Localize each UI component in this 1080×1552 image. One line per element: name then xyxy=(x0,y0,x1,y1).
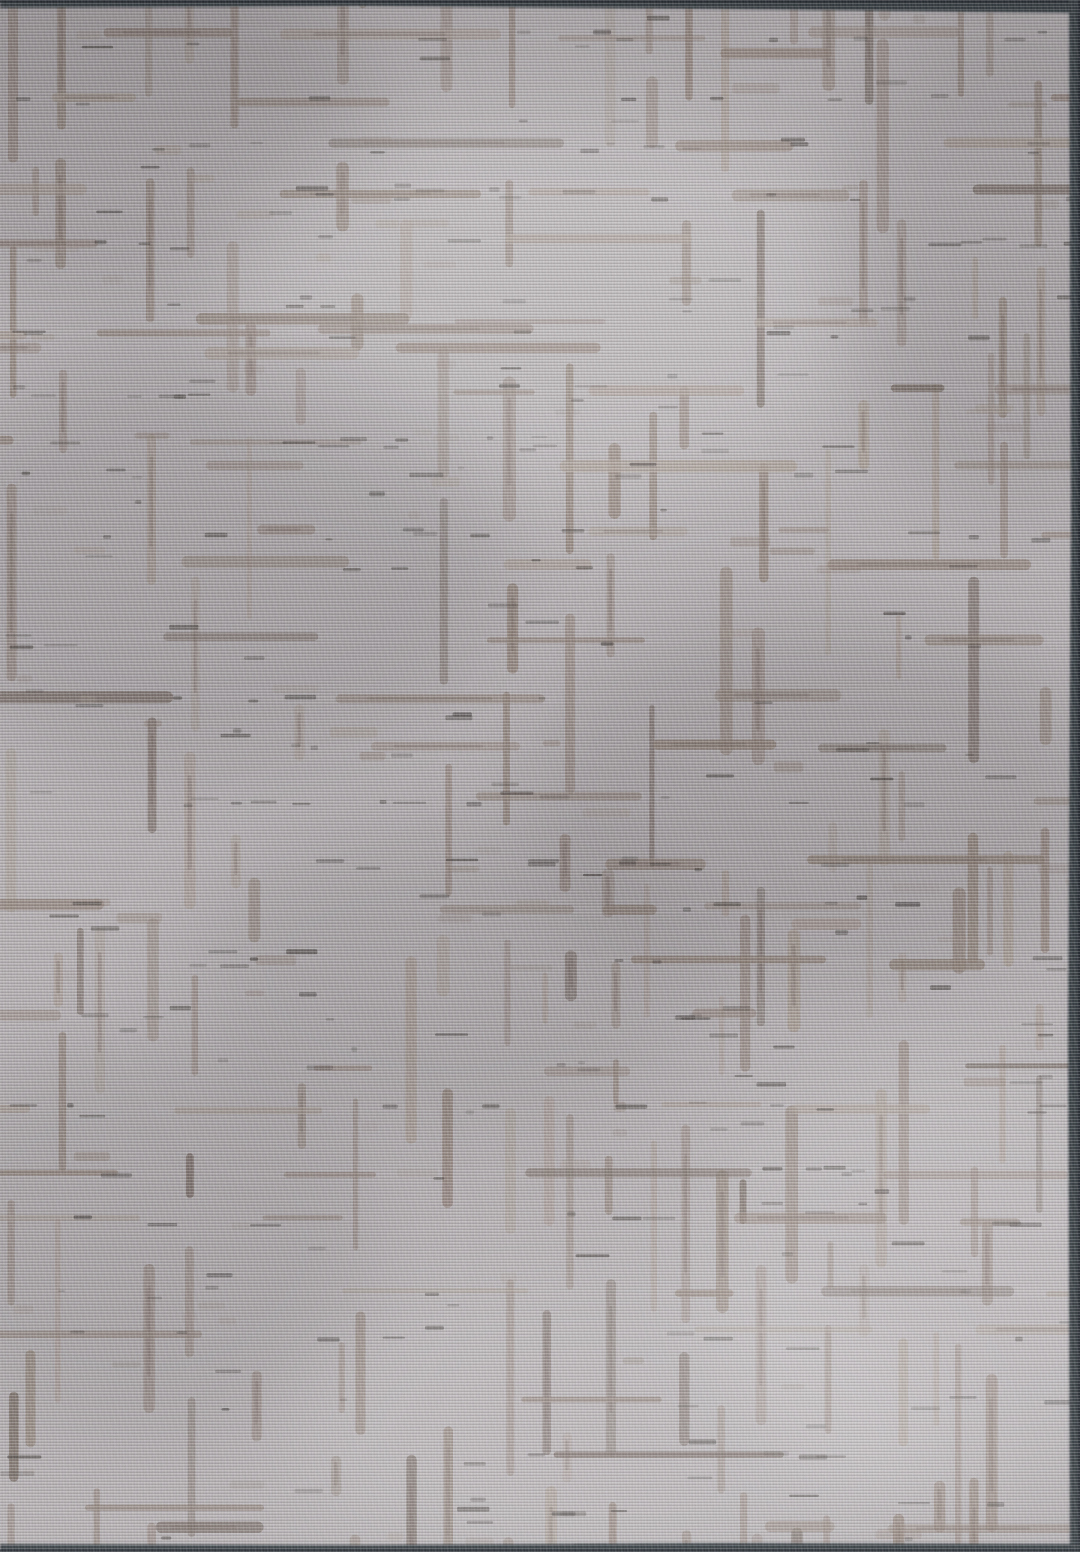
rug-photo xyxy=(0,0,1080,1552)
fabric-grain-noise xyxy=(0,0,1080,1552)
rug-pattern-svg xyxy=(0,0,1080,1552)
